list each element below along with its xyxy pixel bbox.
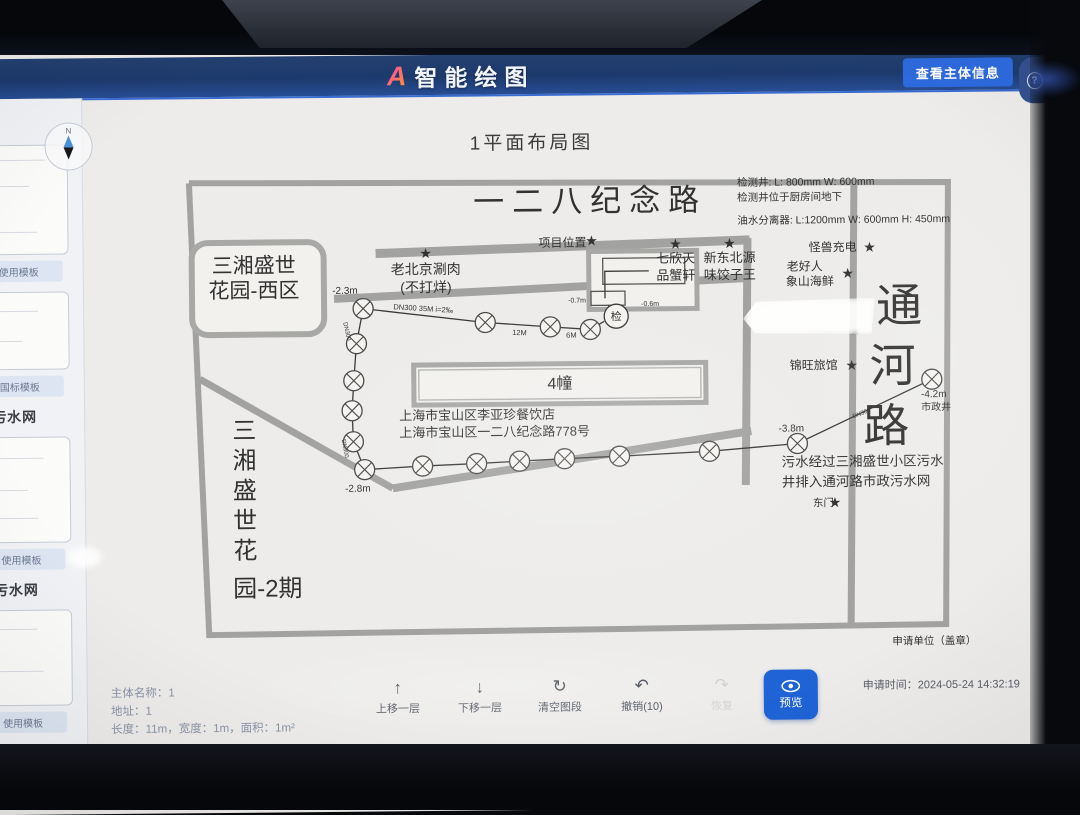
map-label[interactable]: 上海市宝山区一二八纪念路778号 xyxy=(399,423,590,440)
map-label[interactable]: 12M xyxy=(512,328,527,338)
arrow-up-icon: ↑ xyxy=(361,679,435,698)
clear-segments-button[interactable]: ↻ 清空图段 xyxy=(523,677,597,715)
inspection-well-label: 检 xyxy=(611,309,622,323)
move-down-layer-button[interactable]: ↓ 下移一层 xyxy=(443,678,517,716)
manhole-symbol[interactable] xyxy=(922,369,942,389)
map-label[interactable]: 申请单位（盖章） xyxy=(892,634,976,648)
map-label[interactable]: 老北京涮肉 xyxy=(391,261,461,278)
map-label[interactable]: 一二八纪念路 xyxy=(473,182,707,219)
manhole-symbol[interactable] xyxy=(554,449,574,469)
map-label[interactable]: 上海市宝山区李亚珍餐饮店 xyxy=(399,407,555,423)
manhole-symbol[interactable] xyxy=(344,371,364,391)
poi-star-icon[interactable]: ★ xyxy=(849,322,862,338)
manhole-symbol[interactable] xyxy=(413,456,433,476)
manhole-symbol[interactable] xyxy=(580,319,600,339)
manhole-symbol[interactable] xyxy=(342,401,362,421)
map-label[interactable]: 井排入通河路市政污水网 xyxy=(782,472,931,489)
map-label[interactable]: 三 xyxy=(232,418,256,445)
map-label[interactable]: 园-2期 xyxy=(233,575,303,603)
map-label[interactable]: 新东北源 xyxy=(704,250,756,265)
map-label[interactable]: 七欣天 xyxy=(656,250,695,265)
manhole-symbol[interactable] xyxy=(540,317,560,337)
manhole-symbol[interactable] xyxy=(609,446,629,466)
manhole-symbol[interactable] xyxy=(355,460,375,480)
map-label[interactable]: 品蟹轩 xyxy=(656,267,695,282)
subject-address-line: 地址：1 xyxy=(111,702,295,722)
manhole-symbol[interactable] xyxy=(787,433,807,453)
map-label[interactable]: 项目位置 xyxy=(538,234,586,249)
manhole-symbol[interactable] xyxy=(467,453,487,473)
map-label[interactable]: (不打烊) xyxy=(400,279,451,295)
arrow-down-icon: ↓ xyxy=(443,678,517,697)
map-label[interactable]: 湘 xyxy=(232,448,256,475)
map-label[interactable]: -3.8m xyxy=(778,423,804,434)
redo-button[interactable]: ↷ 恢复 xyxy=(685,676,759,714)
redo-icon: ↷ xyxy=(685,676,759,695)
map-label[interactable]: 市政井 xyxy=(921,400,951,413)
photographed-monitor: { "header": { "logo_mark": "A", "logo_te… xyxy=(0,0,1080,810)
map-label[interactable]: 盛 xyxy=(233,478,257,505)
map-label[interactable]: -2.8m xyxy=(345,484,371,495)
map-label[interactable]: DN300 xyxy=(341,322,351,342)
refresh-icon: ↻ xyxy=(523,677,597,696)
map-label[interactable]: 花 xyxy=(233,538,257,565)
map-label[interactable]: 河 xyxy=(869,339,915,391)
poi-star-icon[interactable]: ★ xyxy=(845,357,858,373)
map-label[interactable]: 味饺子王 xyxy=(704,267,756,282)
map-label[interactable]: 老好人 xyxy=(787,259,823,273)
manhole-symbol[interactable] xyxy=(509,451,529,471)
map-label[interactable]: -2.3m xyxy=(332,286,358,297)
map-label[interactable]: 检测井: L: 800mm W: 600mm xyxy=(737,175,875,189)
map-label[interactable]: 通 xyxy=(876,279,922,331)
map-label[interactable]: 东门 xyxy=(813,496,834,509)
subject-name-line: 主体名称：1 xyxy=(111,684,295,704)
map-label[interactable]: 油水分离器: L:1200mm W: 600mm H: 450mm xyxy=(737,212,950,227)
poi-star-icon[interactable]: ★ xyxy=(419,245,432,261)
poi-star-icon[interactable]: ★ xyxy=(723,235,736,251)
map-label[interactable]: 世 xyxy=(233,508,257,535)
preview-button[interactable]: 预览 xyxy=(764,669,818,720)
map-label[interactable]: 4幢 xyxy=(547,375,572,393)
undo-icon: ↶ xyxy=(605,677,679,696)
subject-info-block: 主体名称：1 地址：1 长度：11m，宽度：1m，面积：1m² xyxy=(111,684,295,739)
subject-dims-line: 长度：11m，宽度：1m，面积：1m² xyxy=(111,720,295,740)
map-label[interactable]: -4.2m xyxy=(921,389,947,400)
map-label[interactable]: 怪兽充电 xyxy=(808,239,856,254)
app-screen: A 智能绘图 查看主体信息 ? 帮助 使用模板 国标模板 污水网 使用模板 污水… xyxy=(0,0,1080,815)
map-label[interactable]: 三湘盛世 xyxy=(212,254,296,278)
manhole-symbol[interactable] xyxy=(699,441,719,461)
map-label[interactable]: -0.6m xyxy=(641,301,659,308)
eye-icon xyxy=(781,679,801,692)
poi-star-icon[interactable]: ★ xyxy=(585,232,598,248)
map-label[interactable]: 象山海鲜 xyxy=(786,273,834,288)
poi-star-icon[interactable]: ★ xyxy=(669,236,682,252)
map-label[interactable]: 锦旺旅馆 xyxy=(790,357,838,372)
map-label[interactable]: 花园-西区 xyxy=(208,279,299,303)
poi-star-icon[interactable]: ★ xyxy=(863,239,876,255)
apply-time-label: 申请时间：2024-05-24 14:32:19 xyxy=(863,675,1020,693)
undo-button[interactable]: ↶ 撤销(10) xyxy=(605,677,679,715)
map-label[interactable]: 污水经过三湘盛世小区污水 xyxy=(782,453,945,470)
map-label[interactable]: 路 xyxy=(863,399,909,451)
map-label[interactable]: 6M xyxy=(566,331,577,340)
map-label[interactable]: -0.7m xyxy=(568,297,586,304)
manhole-symbol[interactable] xyxy=(475,312,495,332)
manhole-symbol[interactable] xyxy=(353,299,373,319)
poi-star-icon[interactable]: ★ xyxy=(841,265,854,281)
map-label[interactable]: 检测井位于厨房间地下 xyxy=(737,190,842,204)
move-up-layer-button[interactable]: ↑ 上移一层 xyxy=(361,679,435,717)
inspection-well-symbol[interactable]: 检 xyxy=(604,304,628,328)
